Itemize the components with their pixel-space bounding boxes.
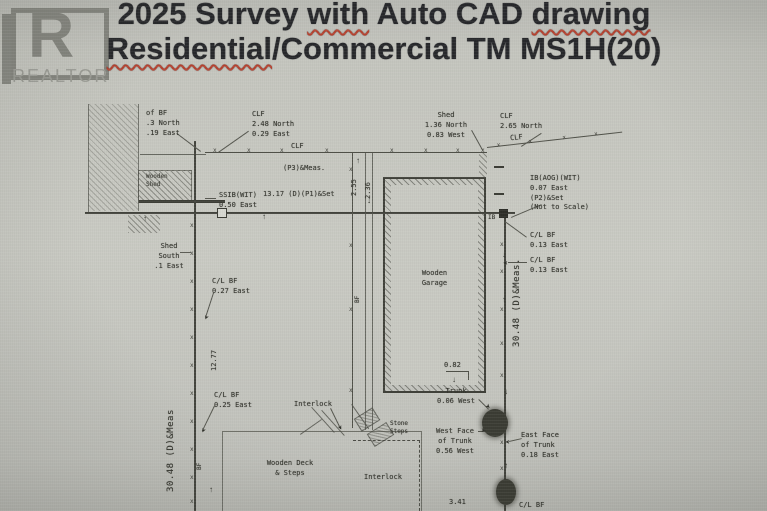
boundary-line-west xyxy=(194,141,196,511)
fence-x-mark: x xyxy=(190,307,194,313)
title-line-1: 2025 Survey with Auto CAD drawing xyxy=(28,0,740,31)
fence-x-mark: x xyxy=(190,223,194,229)
ne-fence-angled: x x x x CLF xyxy=(487,132,622,148)
boundary-line-north xyxy=(85,212,515,214)
bf-label-west: BF xyxy=(196,463,204,470)
fence-x-mark: x xyxy=(247,148,251,154)
fence-x-mark: x xyxy=(190,447,194,453)
p3-meas-note: (P3)&Meas. xyxy=(283,164,325,174)
clbf-013-b-note: C/L BF 0.13 East xyxy=(530,256,568,276)
garage-offset-bracket-h xyxy=(446,371,469,372)
east-boundary-arrow-3: ↓ xyxy=(504,388,508,396)
north-fence-ext xyxy=(140,154,206,155)
fence-x-mark: x xyxy=(349,167,353,173)
north-dimension: 13.17 (D)(P1)&Set xyxy=(263,190,335,200)
title-1-mid: Auto CAD xyxy=(369,0,531,31)
title-1-squiggle-word-1: with xyxy=(307,0,369,31)
dimension-3-41: 3.41 xyxy=(449,498,466,508)
ssib-note: SSIB(WIT) 0.50 East xyxy=(219,191,257,211)
east-boundary-arrow-2: ↑ xyxy=(502,296,506,304)
clbf-025-arrowhead: ➤ xyxy=(199,426,207,433)
east-dimension-30-48: 30.48 (D)&Meas. xyxy=(511,258,524,347)
interlock-label-2: Interlock xyxy=(364,473,402,483)
east-boundary-arrow-1: ↓ xyxy=(502,251,506,259)
fence-x-mark: x xyxy=(190,279,194,285)
wooden-shed-label: Wooden Shed xyxy=(146,173,168,190)
ssib-dash xyxy=(205,198,216,199)
trunk-006-note: Trunk 0.06 West xyxy=(434,387,478,407)
west-margin-line-a xyxy=(88,104,89,213)
fence-x-mark: x xyxy=(481,148,485,154)
fence-x-mark: x xyxy=(280,148,284,154)
fence-x-mark: x xyxy=(190,419,194,425)
fence-x-mark: x xyxy=(190,391,194,397)
fence-x-mark: x xyxy=(349,243,353,249)
east-tick-1 xyxy=(494,166,504,168)
east-face-leader xyxy=(509,438,522,442)
clbf-013-b-arrowhead: ➤ xyxy=(503,259,508,265)
title-2-squiggle-word: Residential xyxy=(107,31,272,66)
fence-x-mark: x xyxy=(456,148,460,154)
north-fence-clf-inline: CLF xyxy=(291,142,304,152)
fence-x-mark: x xyxy=(562,135,566,141)
wooden-garage-interior: Wooden Garage xyxy=(391,185,478,385)
dimension-2-36: 2.36 xyxy=(364,182,374,199)
fence-x-mark: x xyxy=(594,131,598,137)
fence-x-mark: x xyxy=(390,148,394,154)
fence-x-mark: x xyxy=(325,148,329,154)
clbf-013-a-note: C/L BF 0.13 East xyxy=(530,231,568,251)
fence-x-mark: x xyxy=(500,440,504,446)
ne-shed-note: Shed 1.36 North 0.83 West xyxy=(419,111,473,140)
ib-note: IB(AOG)(WIT) 0.07 East (P2)&Set (Not to … xyxy=(530,174,589,213)
fence-x-mark: x xyxy=(500,269,504,275)
stone-steps-label: Stone Steps xyxy=(384,420,414,437)
west-face-note: West Face of Trunk 0.56 West xyxy=(430,427,480,456)
ssib-arrow: ↑ xyxy=(262,213,266,221)
ib-monument xyxy=(499,209,508,218)
fence-x-mark: x xyxy=(190,251,194,257)
interlock-label-1: Interlock xyxy=(294,400,332,410)
fence-x-mark: x xyxy=(349,307,353,313)
west-dimension-30-48: 30.48 (D)&Meas xyxy=(165,409,178,492)
east-face-arrowhead: ➤ xyxy=(505,438,510,444)
fence-x-mark: x xyxy=(497,142,501,148)
fence-x-mark: x xyxy=(349,388,353,394)
tree-trunk-2 xyxy=(496,479,516,505)
ne-fence-clf-inline: CLF xyxy=(510,133,524,144)
fence-x-mark: x xyxy=(500,373,504,379)
dimension-12-77: 12.77 xyxy=(210,350,220,371)
title-1-pre: 2025 Survey xyxy=(118,0,308,31)
sw-bottom-arrow: ↑ xyxy=(209,486,213,494)
clbf-bottom-note: C/L BF xyxy=(519,501,544,511)
garage-offset-arrow: ↓ xyxy=(452,376,456,384)
garage-fence-hatch xyxy=(479,153,487,178)
fence-x-mark: x xyxy=(213,148,217,154)
east-tick-2 xyxy=(494,193,504,195)
west-face-arrowhead: ➤ xyxy=(481,428,486,434)
west-margin-hatch xyxy=(88,104,138,211)
nw-clf-note: CLF 2.48 North 0.29 East xyxy=(252,110,294,139)
west-margin-line-b xyxy=(138,104,139,211)
ne-clf-note: CLF 2.65 North xyxy=(500,112,542,132)
sw-hatch-arrow: ↑ xyxy=(143,215,147,223)
fence-x-mark: x xyxy=(500,242,504,248)
nw-bf-note: of BF .3 North .19 East xyxy=(146,109,180,138)
fence-x-mark: x xyxy=(190,499,194,505)
interlock-dashed-side xyxy=(419,440,420,511)
title-1-squiggle-word-2: drawing xyxy=(532,0,651,31)
garage-offset-label: 0.82 xyxy=(444,361,461,371)
survey-photo-page: R REALTOR 2025 Survey with Auto CAD draw… xyxy=(0,0,767,511)
east-face-note: East Face of Trunk 0.18 East xyxy=(521,431,559,460)
wooden-garage-label: Wooden Garage xyxy=(391,269,478,289)
nw-clf-leader xyxy=(218,131,249,153)
shed-south-note: Shed South .1 East xyxy=(152,242,186,271)
ib-monument-label: IB xyxy=(488,214,495,222)
trunk2-arrow: ↑ xyxy=(504,462,508,470)
fence-x-mark: x xyxy=(190,475,194,481)
nw-bf-leader xyxy=(176,133,201,152)
fence-x-mark: x xyxy=(190,363,194,369)
shed-south-bar xyxy=(139,200,225,203)
fence-x-mark: x xyxy=(424,148,428,154)
wooden-deck-label: Wooden Deck & Steps xyxy=(255,459,325,479)
title-line-2: Residential/Commercial TM MS1H(20) xyxy=(28,32,740,66)
wooden-garage: Wooden Garage xyxy=(383,177,486,393)
dim-arrow-up: ↑ xyxy=(356,157,360,165)
title-2-rest: /Commercial TM MS1H(20) xyxy=(272,31,661,66)
clbf-025-note: C/L BF 0.25 East xyxy=(214,391,252,411)
garage-offset-bracket-v xyxy=(468,371,469,380)
clbf-027-note: C/L BF 0.27 East xyxy=(212,277,250,297)
fence-x-mark: x xyxy=(500,341,504,347)
clbf-013-a-leader xyxy=(504,221,526,238)
realtor-wordmark: REALTOR xyxy=(12,66,109,86)
logo-edge-shadow xyxy=(2,14,11,84)
bf-label-interior: BF xyxy=(354,296,362,303)
fence-x-mark: x xyxy=(500,307,504,313)
interlock-dashed-top xyxy=(353,440,420,441)
fence-x-mark: x xyxy=(190,335,194,341)
dimension-2-55: 2.55 xyxy=(350,179,360,196)
clbf-027-arrowhead: ➤ xyxy=(202,313,210,320)
